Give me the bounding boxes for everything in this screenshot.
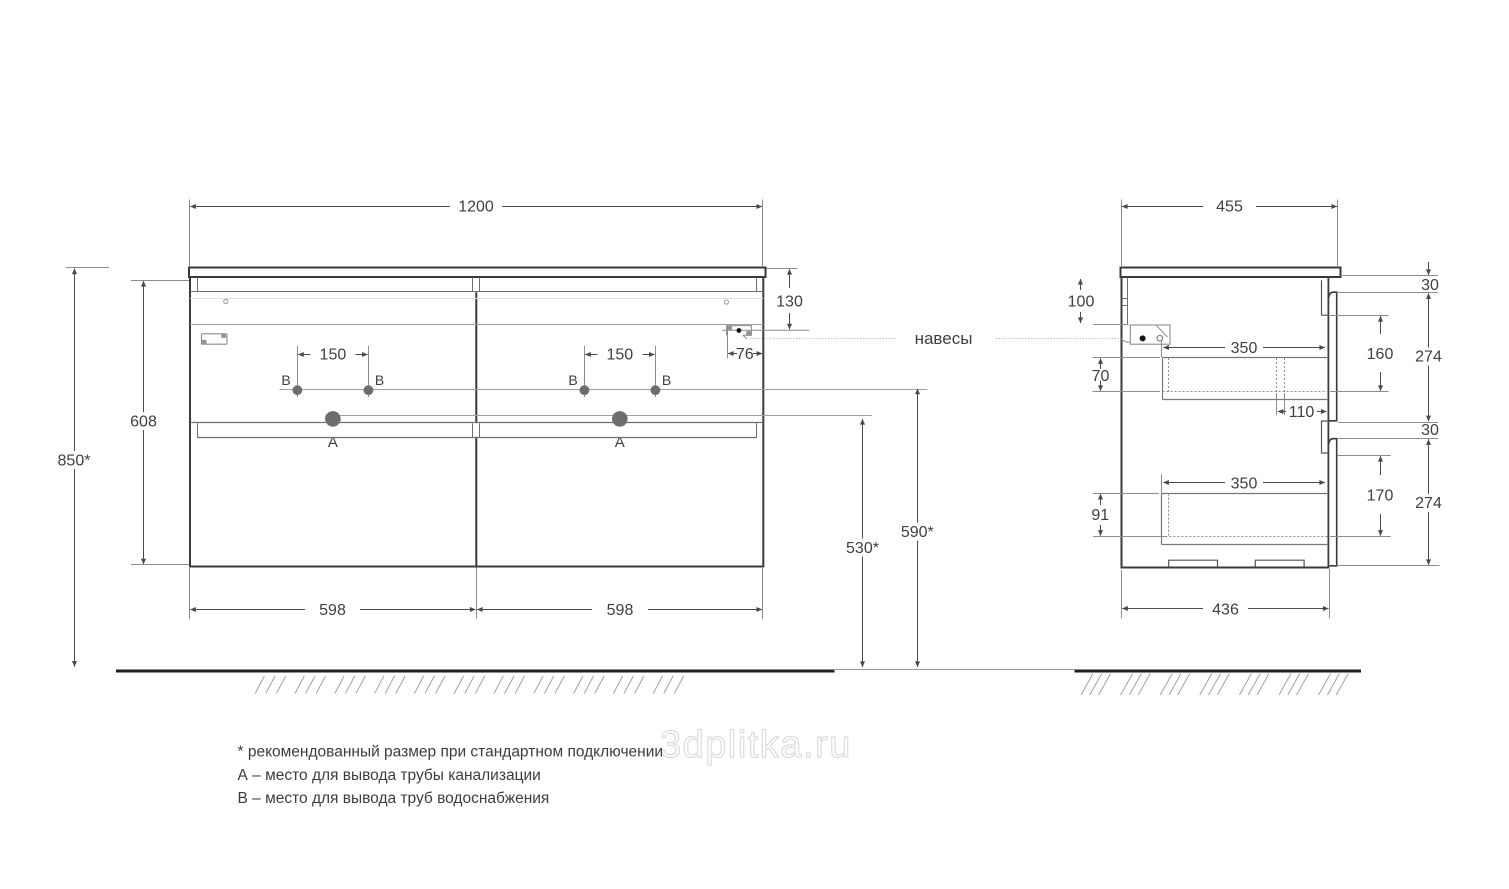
- svg-text:110: 110: [1289, 404, 1315, 421]
- svg-text:530*: 530*: [846, 540, 879, 557]
- svg-text:30: 30: [1421, 422, 1439, 439]
- svg-text:598: 598: [607, 602, 634, 619]
- svg-text:274: 274: [1415, 348, 1442, 365]
- svg-text:A: A: [615, 434, 625, 451]
- svg-text:150: 150: [606, 346, 633, 363]
- svg-text:160: 160: [1367, 346, 1394, 363]
- svg-text:91: 91: [1091, 507, 1109, 524]
- svg-text:B: B: [281, 372, 290, 388]
- svg-text:850*: 850*: [58, 452, 91, 469]
- svg-text:навесы: навесы: [915, 329, 973, 348]
- svg-text:274: 274: [1415, 495, 1442, 512]
- svg-text:70: 70: [1092, 368, 1110, 385]
- svg-text:B: B: [568, 372, 577, 388]
- svg-text:350: 350: [1231, 475, 1258, 492]
- svg-text:B: B: [375, 372, 384, 388]
- svg-text:350: 350: [1231, 340, 1258, 357]
- svg-text:455: 455: [1216, 198, 1243, 215]
- svg-text:130: 130: [776, 293, 803, 310]
- svg-text:A: A: [328, 434, 338, 451]
- svg-text:30: 30: [1421, 277, 1439, 294]
- svg-text:436: 436: [1212, 601, 1239, 618]
- svg-text:76: 76: [736, 346, 754, 363]
- svg-text:170: 170: [1367, 487, 1394, 504]
- svg-text:608: 608: [130, 413, 157, 430]
- svg-text:В – место для вывода труб водо: В – место для вывода труб водоснабжения: [238, 790, 550, 807]
- svg-text:B: B: [662, 372, 671, 388]
- svg-text:* рекомендованный размер при с: * рекомендованный размер при стандартном…: [238, 744, 664, 761]
- svg-text:А – место для вывода трубы кан: А – место для вывода трубы канализации: [238, 767, 541, 784]
- svg-text:598: 598: [319, 602, 346, 619]
- svg-text:100: 100: [1068, 293, 1095, 310]
- svg-text:150: 150: [320, 346, 347, 363]
- svg-text:590*: 590*: [901, 524, 934, 541]
- svg-text:3dplitka.ru: 3dplitka.ru: [660, 724, 852, 766]
- svg-text:1200: 1200: [458, 198, 494, 215]
